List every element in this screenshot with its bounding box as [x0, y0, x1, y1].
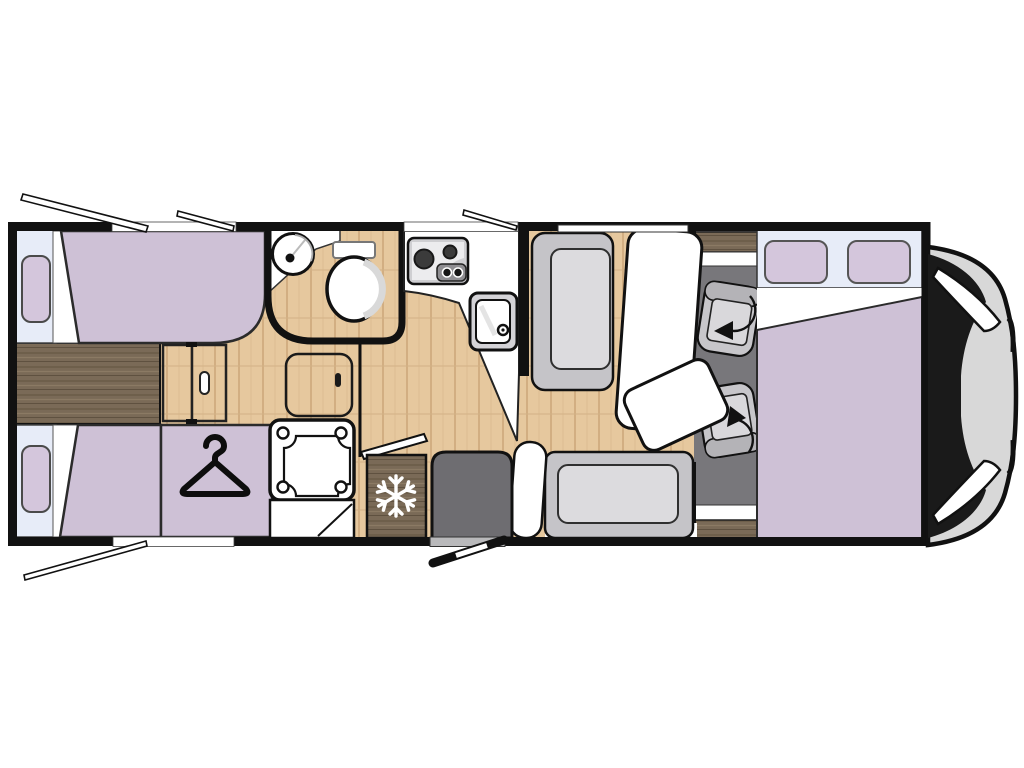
hob-burners-icon — [408, 238, 468, 284]
toilet-icon — [327, 242, 382, 321]
bench-armrest — [509, 441, 548, 539]
rear-bed-top-mattress — [61, 231, 265, 343]
entry-step — [432, 452, 512, 538]
wardrobe — [161, 425, 272, 537]
floorplan-page — [0, 0, 1024, 768]
window-flap-rear-bottom — [24, 541, 147, 580]
window-dinette — [558, 225, 688, 232]
shelf-strip-bottom — [694, 505, 758, 520]
front-bed — [757, 230, 922, 538]
front-bed-pillow-right — [848, 241, 910, 283]
floorplan-svg — [0, 0, 1024, 768]
dinette-bench-bottom-cushion — [558, 465, 678, 523]
shower-cabinet — [270, 500, 354, 538]
front-bed-pillow-left — [765, 241, 827, 283]
rear-walkway-step — [16, 343, 160, 424]
sideboard-bottom — [694, 520, 758, 538]
shelf-strip-top — [694, 252, 758, 266]
dinette-bench-side-cushion — [551, 249, 610, 369]
dinette-partition-wall — [519, 228, 529, 376]
shower-cubicle — [270, 420, 354, 538]
door-handle — [200, 372, 209, 394]
kitchen-sink — [470, 293, 517, 350]
rear-bed-top-pillow — [22, 256, 50, 322]
rear-bed-bottom-pillow — [22, 446, 50, 512]
cab-nose — [928, 247, 1016, 545]
rear-bed-bottom-mattress — [60, 425, 161, 537]
sideboard-top — [694, 232, 758, 252]
front-bed-mattress — [757, 297, 922, 538]
refrigerator — [367, 455, 426, 538]
round-washbasin-icon — [273, 234, 314, 275]
